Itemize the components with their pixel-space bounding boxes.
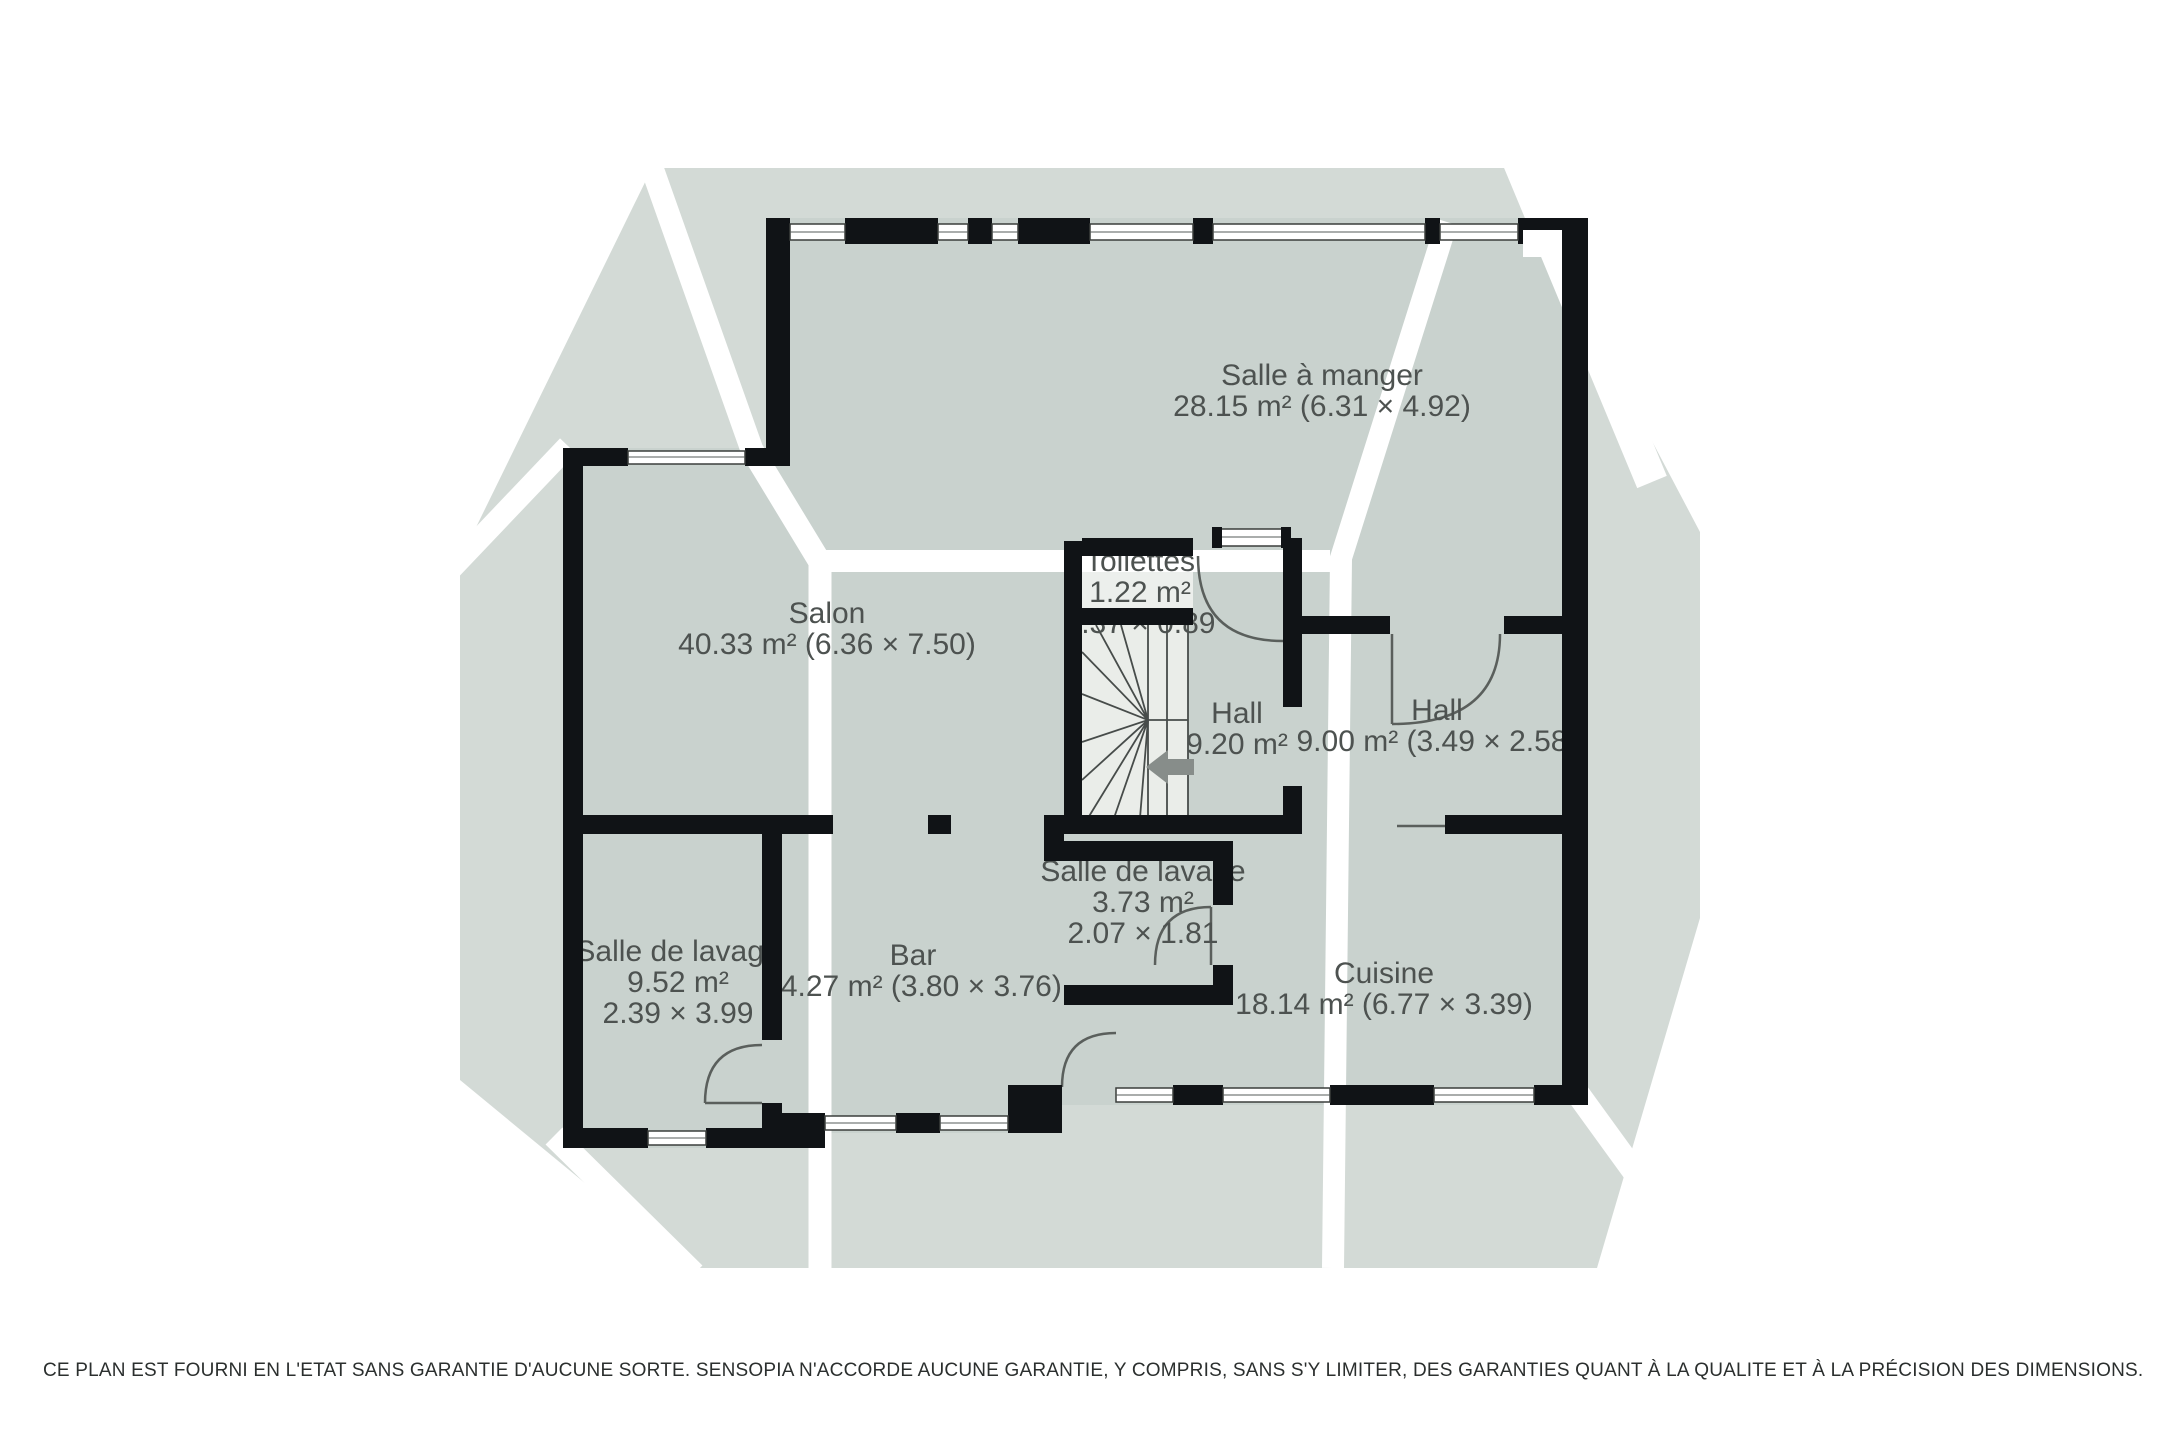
walls	[563, 218, 1588, 1148]
floor-plan-wall-layer	[0, 0, 2160, 1440]
floor-plan-page: Salle à manger 28.15 m² (6.31 × 4.92) Sa…	[0, 0, 2160, 1440]
disclaimer-text: CE PLAN EST FOURNI EN L'ETAT SANS GARANT…	[43, 1360, 2143, 1382]
